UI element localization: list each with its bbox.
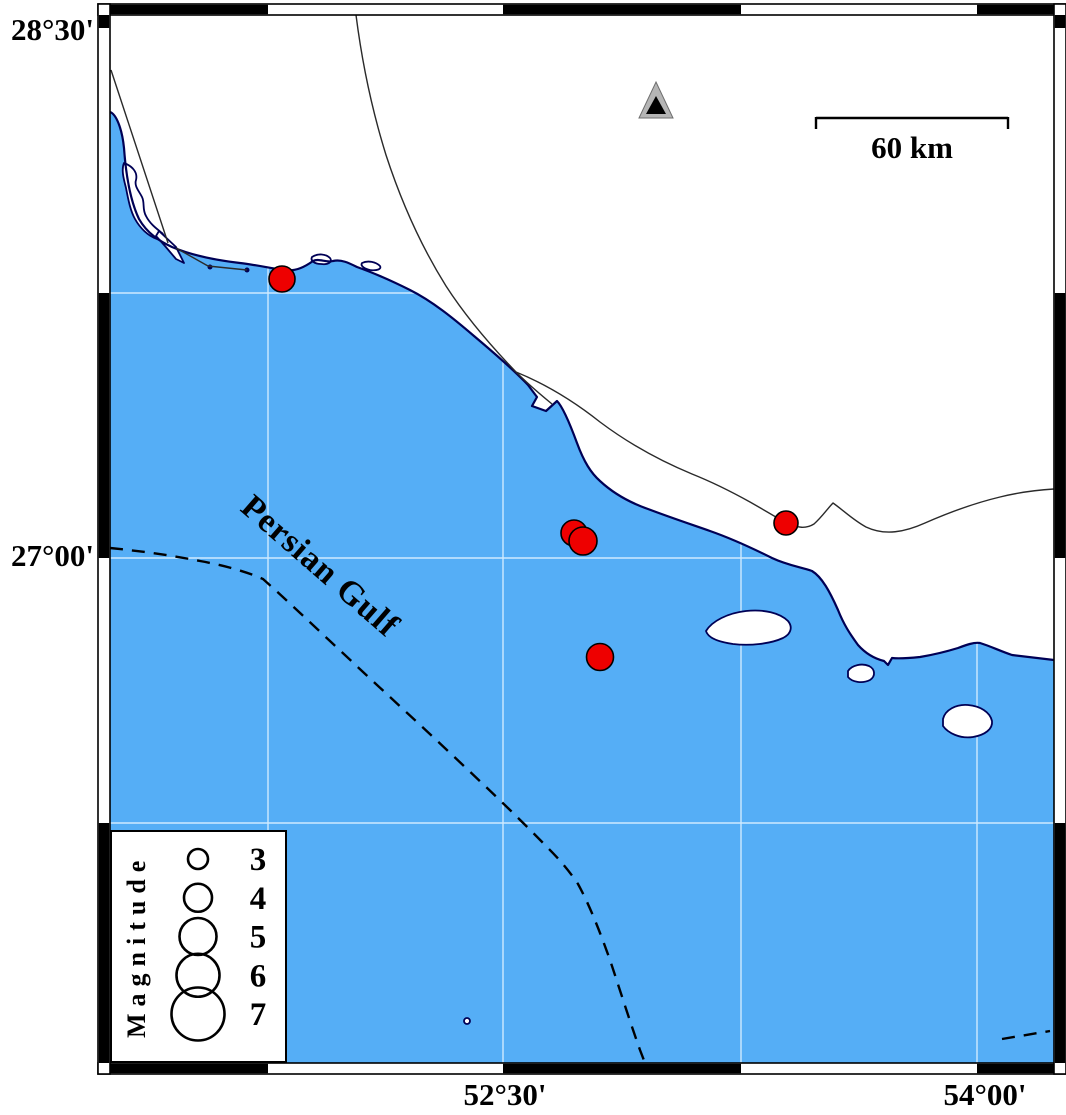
latitude-label-28-30: 28°30' — [0, 13, 94, 47]
legend-circle-magnitude-6 — [177, 954, 220, 997]
island — [848, 665, 874, 683]
earthquake-epicenter — [774, 511, 798, 535]
magnitude-legend: Magnitude 34567 — [110, 830, 287, 1063]
longitude-label-54-00: 54°00' — [885, 1078, 1066, 1112]
latitude-label-27-00: 27°00' — [0, 539, 94, 573]
earthquake-epicenter — [587, 644, 614, 671]
legend-circle-magnitude-3 — [188, 849, 208, 869]
island — [943, 705, 992, 737]
seismicity-map-figure: 28°30' 27°00' 52°30' 54°00' 60 km Persia… — [0, 0, 1066, 1115]
legend-magnitude-value: 3 — [250, 842, 267, 878]
legend-magnitude-value: 5 — [250, 920, 267, 956]
islet — [464, 1018, 470, 1024]
legend-magnitude-value: 6 — [250, 958, 267, 994]
legend-circle-magnitude-5 — [180, 918, 217, 955]
legend-circle-magnitude-4 — [184, 884, 212, 912]
earthquake-epicenter — [569, 527, 597, 555]
scale-bar — [816, 117, 1008, 129]
legend-symbols: 34567 — [112, 832, 284, 1060]
station-triangle-marker — [639, 82, 673, 118]
earthquake-epicenter — [269, 266, 295, 292]
longitude-label-52-30: 52°30' — [405, 1078, 605, 1112]
legend-magnitude-value: 4 — [250, 881, 267, 917]
scale-bar-label: 60 km — [812, 130, 1012, 166]
legend-magnitude-value: 7 — [250, 997, 267, 1033]
